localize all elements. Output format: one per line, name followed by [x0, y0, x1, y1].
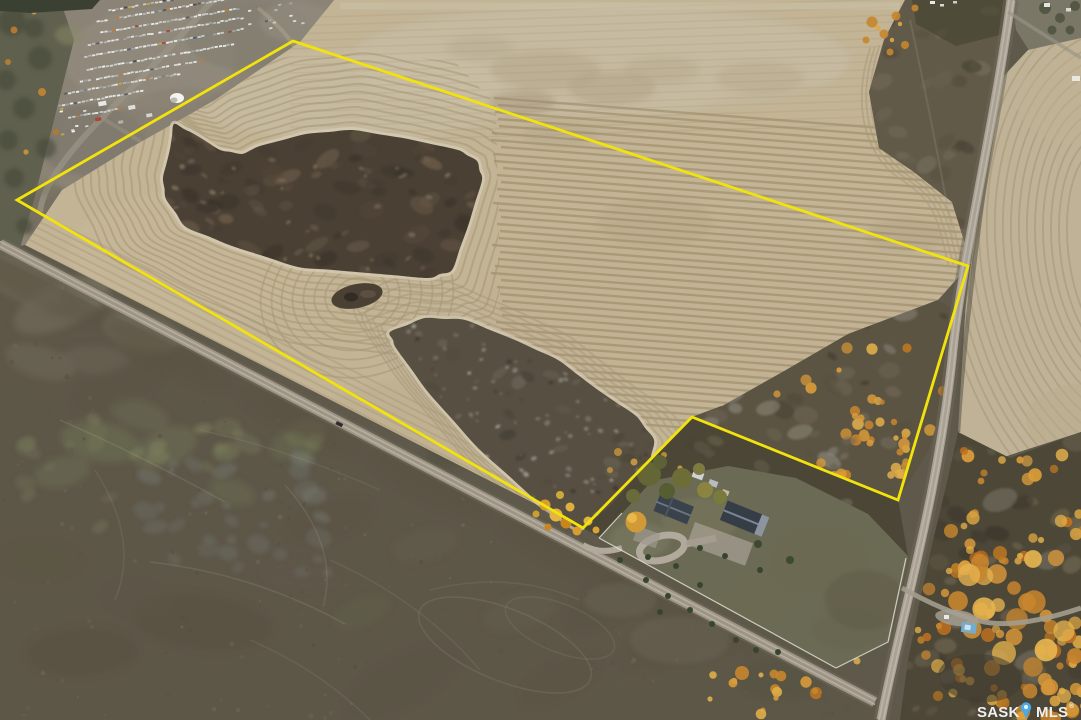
svg-text:SASK: SASK [977, 704, 1019, 720]
svg-text:MLS: MLS [1036, 704, 1068, 720]
svg-text:®: ® [1069, 702, 1075, 710]
